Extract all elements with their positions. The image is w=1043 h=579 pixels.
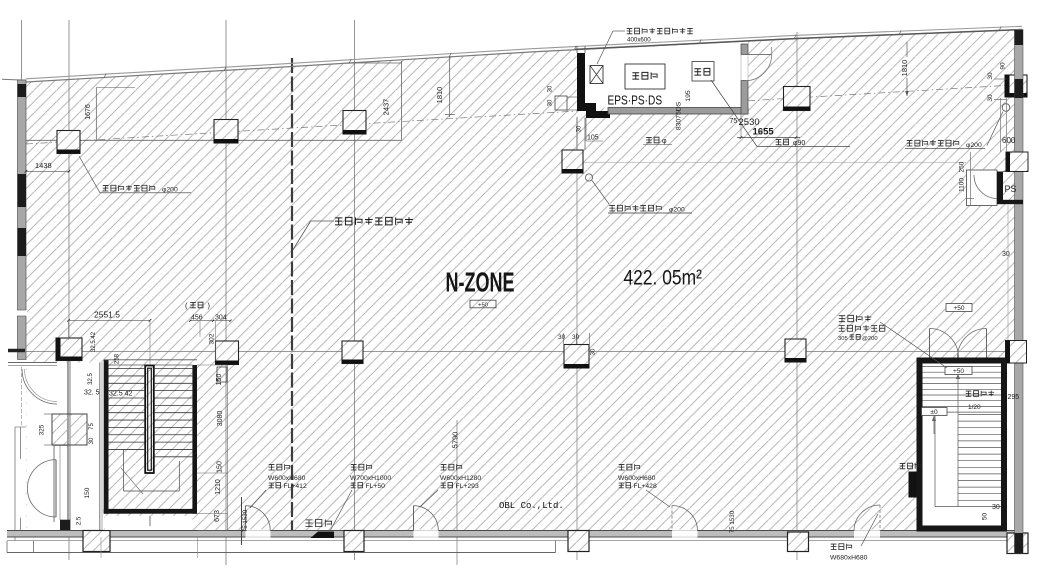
- svg-text:3080: 3080: [217, 411, 224, 427]
- svg-text:75: 75: [730, 118, 738, 125]
- svg-text:φ: φ: [662, 138, 667, 145]
- svg-text:1438: 1438: [35, 161, 52, 170]
- svg-text:+50: +50: [953, 368, 964, 375]
- svg-text:@200: @200: [862, 336, 878, 342]
- svg-text:150: 150: [216, 374, 223, 386]
- svg-text:30: 30: [1002, 251, 1010, 258]
- svg-text:30: 30: [987, 72, 994, 80]
- svg-text:2.5: 2.5: [77, 516, 83, 525]
- svg-text:1655: 1655: [753, 127, 775, 138]
- svg-text:30: 30: [548, 85, 554, 92]
- svg-text:EPS·PS·DS: EPS·PS·DS: [608, 93, 663, 107]
- svg-text:75 1530: 75 1530: [729, 510, 736, 533]
- svg-text:30: 30: [992, 504, 1000, 511]
- svg-text:1/20: 1/20: [968, 404, 981, 411]
- svg-text:2551.5: 2551.5: [94, 310, 120, 320]
- svg-text:75: 75: [89, 423, 95, 430]
- svg-text:30: 30: [987, 94, 994, 102]
- svg-text:N-ZONE: N-ZONE: [446, 267, 515, 298]
- svg-text:FL+412: FL+412: [284, 483, 307, 490]
- svg-text:50: 50: [982, 513, 989, 521]
- svg-text:75 1530: 75 1530: [242, 509, 249, 532]
- svg-text:1676: 1676: [85, 104, 92, 120]
- svg-text:105: 105: [587, 135, 599, 142]
- svg-text:1210: 1210: [215, 479, 222, 495]
- svg-text:W700xH1000: W700xH1000: [350, 475, 391, 482]
- svg-text:W600xH1280: W600xH1280: [440, 475, 481, 482]
- svg-text:1100: 1100: [959, 178, 966, 192]
- svg-text:2530: 2530: [739, 117, 760, 128]
- svg-text:32. 5: 32. 5: [84, 390, 100, 397]
- svg-text:φ90: φ90: [793, 140, 805, 147]
- svg-text:30: 30: [558, 334, 566, 341]
- svg-text:325: 325: [39, 424, 46, 435]
- svg-text:258: 258: [115, 353, 121, 364]
- svg-text:1810: 1810: [900, 60, 909, 77]
- svg-text:30: 30: [572, 334, 580, 341]
- svg-text:PS: PS: [1005, 184, 1017, 194]
- svg-text:150: 150: [84, 487, 91, 498]
- svg-text:195: 195: [685, 90, 692, 102]
- svg-text:±0: ±0: [930, 409, 938, 416]
- svg-text:W680xH680: W680xH680: [830, 555, 868, 562]
- svg-text:302: 302: [209, 333, 216, 344]
- svg-text:1810: 1810: [435, 87, 444, 104]
- svg-text:30: 30: [89, 437, 95, 444]
- svg-text:+50: +50: [953, 305, 964, 312]
- svg-text:32.5.42: 32.5.42: [91, 331, 97, 352]
- svg-text:305: 305: [838, 336, 848, 342]
- svg-text:150: 150: [217, 461, 224, 473]
- svg-text:400x600: 400x600: [627, 37, 651, 44]
- svg-text:φ200: φ200: [669, 207, 685, 214]
- svg-text:32.5: 32.5: [88, 373, 94, 385]
- svg-text:2437: 2437: [382, 99, 391, 116]
- svg-text:600: 600: [1002, 136, 1016, 145]
- svg-text:W600xH680: W600xH680: [618, 475, 656, 482]
- svg-text:OBL Co.,Ltd.: OBL Co.,Ltd.: [499, 501, 564, 511]
- svg-text:+50: +50: [478, 303, 488, 309]
- svg-text:83075DS: 83075DS: [676, 101, 683, 130]
- svg-text:90: 90: [1000, 62, 1007, 70]
- svg-text:FL+428: FL+428: [634, 483, 657, 490]
- svg-text:30: 30: [548, 99, 554, 106]
- svg-text:W600xH680: W600xH680: [268, 475, 306, 482]
- svg-text:FL+293: FL+293: [456, 483, 479, 490]
- svg-text:295: 295: [1008, 394, 1020, 401]
- svg-text:30: 30: [577, 125, 583, 132]
- svg-text:250: 250: [959, 161, 966, 172]
- svg-text:32.5 42: 32.5 42: [109, 391, 132, 398]
- svg-text:422. 05m²: 422. 05m²: [624, 267, 703, 290]
- svg-text:FL+50: FL+50: [366, 483, 386, 490]
- svg-text:673: 673: [214, 510, 221, 522]
- svg-text:5790: 5790: [451, 432, 460, 449]
- svg-text:30: 30: [591, 348, 597, 355]
